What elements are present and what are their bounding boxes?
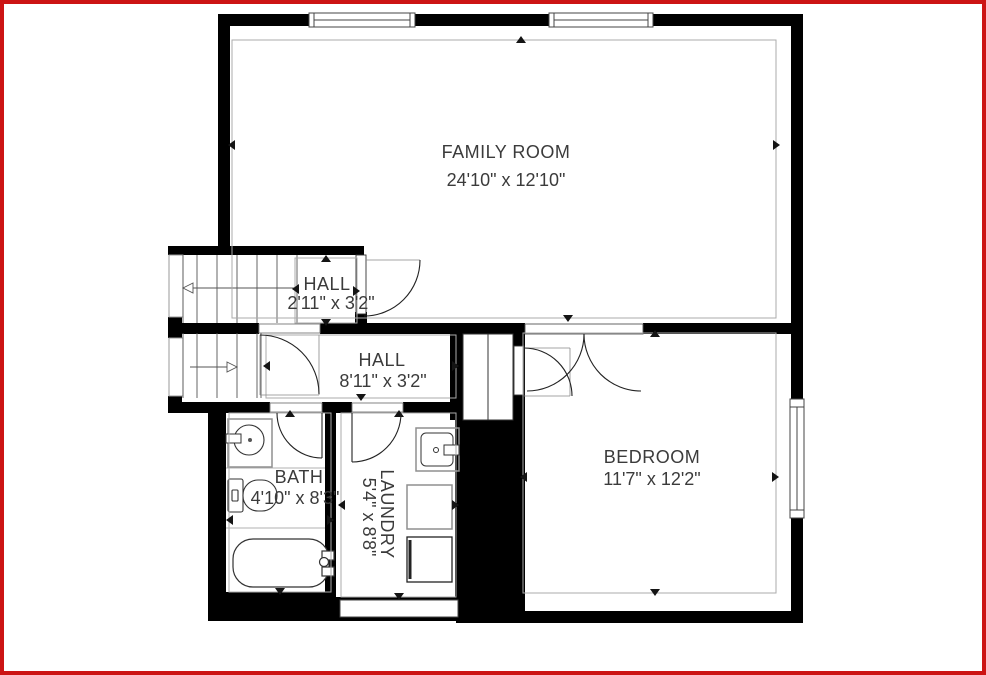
wall-bottom bbox=[456, 611, 803, 623]
window-laundry-bottom bbox=[340, 600, 458, 617]
wall-bath-left bbox=[208, 402, 226, 621]
opening-laundry bbox=[352, 403, 403, 412]
window-top-right bbox=[549, 13, 653, 27]
window-bedroom-right bbox=[790, 399, 804, 518]
window-top-left bbox=[309, 13, 415, 27]
label-hall-lower: HALL bbox=[358, 350, 405, 370]
window-stair-left-lower bbox=[169, 338, 183, 396]
wall-hall-divider-a bbox=[182, 323, 259, 334]
wall-bedroom-top bbox=[643, 323, 803, 334]
opening-hall-lower bbox=[259, 324, 320, 333]
opening-bath bbox=[270, 403, 322, 412]
dims-bedroom: 11'7" x 12'2" bbox=[603, 469, 700, 489]
wall-left-post-mid bbox=[168, 317, 182, 338]
wall-bath-top-b bbox=[322, 402, 352, 413]
window-stair-left-upper bbox=[169, 255, 183, 317]
wall-right bbox=[791, 14, 803, 623]
dims-family-room: 24'10" x 12'10" bbox=[447, 170, 566, 190]
wall-hall-divider-b bbox=[320, 323, 525, 334]
bathtub bbox=[233, 539, 334, 587]
wall-bath-bottom bbox=[208, 592, 336, 621]
wall-familyroom-left bbox=[218, 14, 230, 252]
wall-top bbox=[218, 14, 803, 26]
floor-plan: FAMILY ROOM 24'10" x 12'10" HALL 2'11" x… bbox=[0, 0, 986, 675]
wall-stair-top bbox=[168, 246, 364, 255]
utility-closet bbox=[463, 334, 513, 420]
dims-hall-lower: 8'11" x 3'2" bbox=[339, 371, 426, 391]
label-bath: BATH bbox=[275, 467, 324, 487]
label-family-room: FAMILY ROOM bbox=[442, 142, 571, 162]
dims-laundry: 5'4" x 8'8" bbox=[359, 478, 379, 557]
label-bedroom: BEDROOM bbox=[604, 447, 701, 467]
dims-bath: 4'10" x 8'3" bbox=[251, 488, 340, 508]
chimney-mass bbox=[455, 418, 515, 613]
dims-hall-upper: 2'11" x 3'2" bbox=[287, 293, 374, 313]
label-laundry: LAUNDRY bbox=[377, 469, 397, 558]
label-hall-upper: HALL bbox=[303, 274, 350, 294]
